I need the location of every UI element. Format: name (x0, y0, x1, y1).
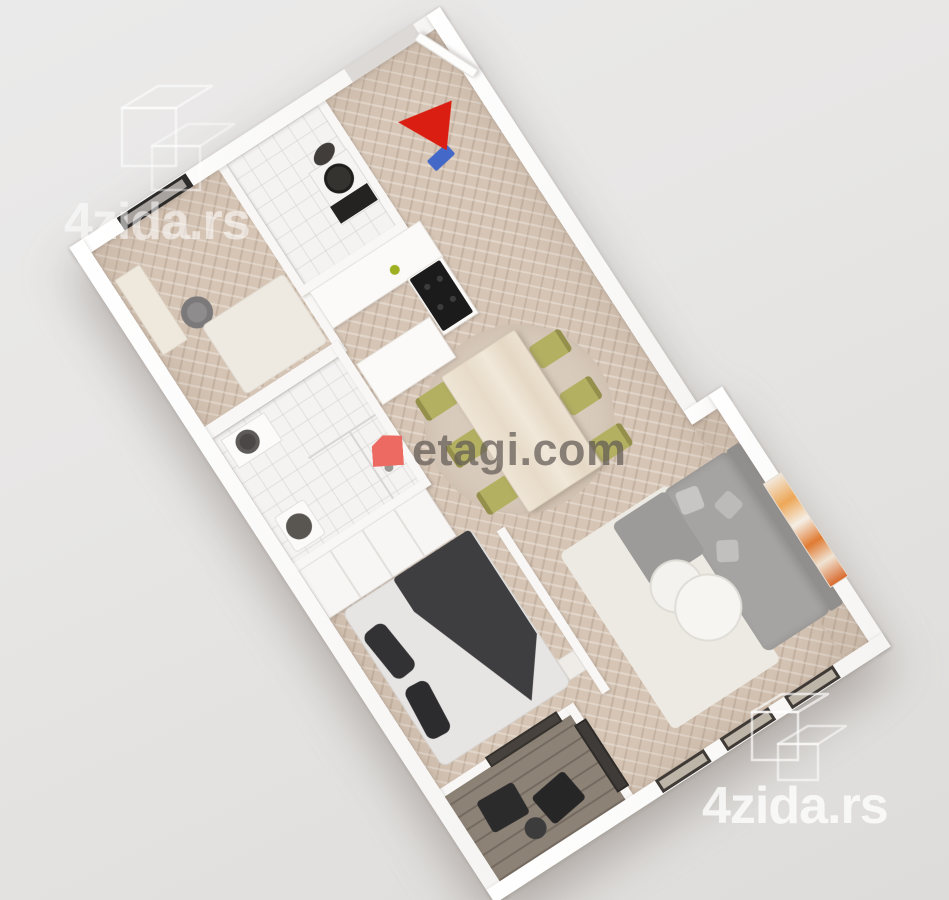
4zida-logo-outline-top-left (108, 68, 236, 193)
watermark-center: etagi.com (372, 424, 627, 476)
sofa-pillow (716, 539, 739, 562)
etagi-logo-icon (371, 433, 404, 466)
etagi-text: etagi.com (412, 424, 627, 476)
watermark-bottom-right: 4zida.rs (702, 776, 888, 836)
page-background: 4zida.rs etagi.com 4zida.rs (0, 0, 949, 900)
4zida-logo-outline-bottom-right (742, 680, 854, 785)
watermark-top-left: 4zida.rs (64, 192, 250, 252)
